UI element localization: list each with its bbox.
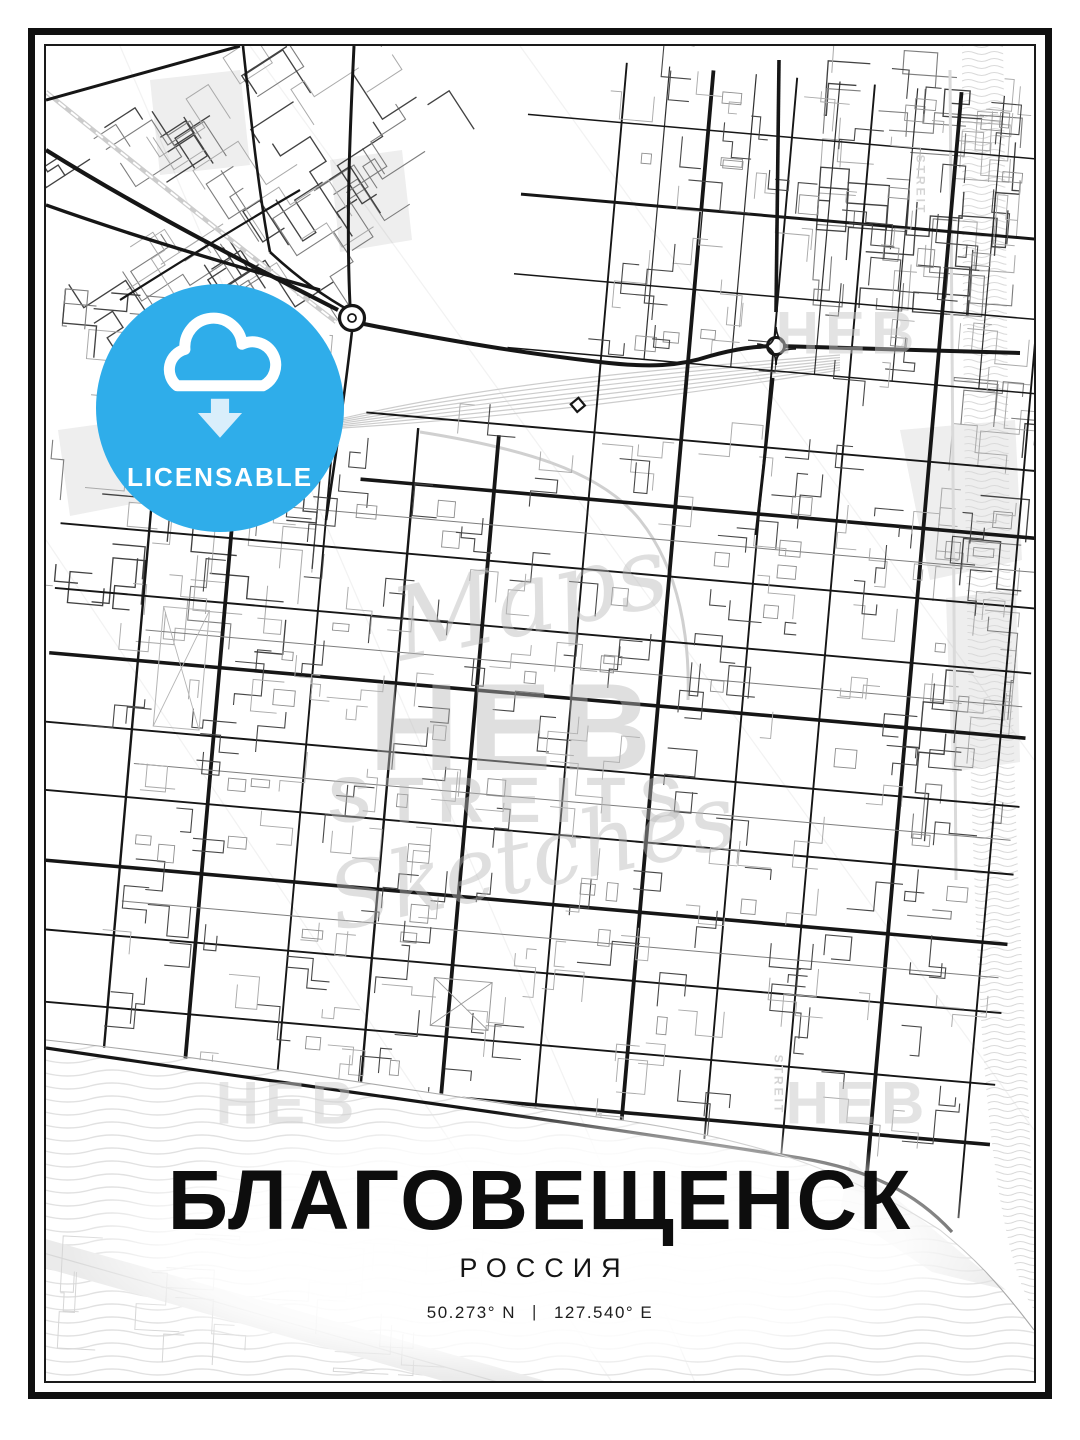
- coordinates-divider: |: [532, 1302, 538, 1322]
- licensable-badge: LICENSABLE: [96, 284, 344, 532]
- badge-label: LICENSABLE: [96, 462, 344, 493]
- cloud-download-icon: [146, 300, 294, 456]
- coordinates: 50.273° N|127.540° E: [0, 1303, 1080, 1323]
- city-title: БЛАГОВЕЩЕНСК: [0, 1152, 1080, 1249]
- download-arrow: [198, 399, 242, 438]
- map-poster-product-image: Maps HEB STREITS Sketches HEB HEB HEB ST…: [0, 0, 1080, 1440]
- country-subtitle: РОССИЯ: [0, 1253, 1080, 1284]
- latitude-value: 50.273° N: [427, 1303, 516, 1322]
- cloud-shape: [169, 318, 275, 386]
- longitude-value: 127.540° E: [554, 1303, 653, 1322]
